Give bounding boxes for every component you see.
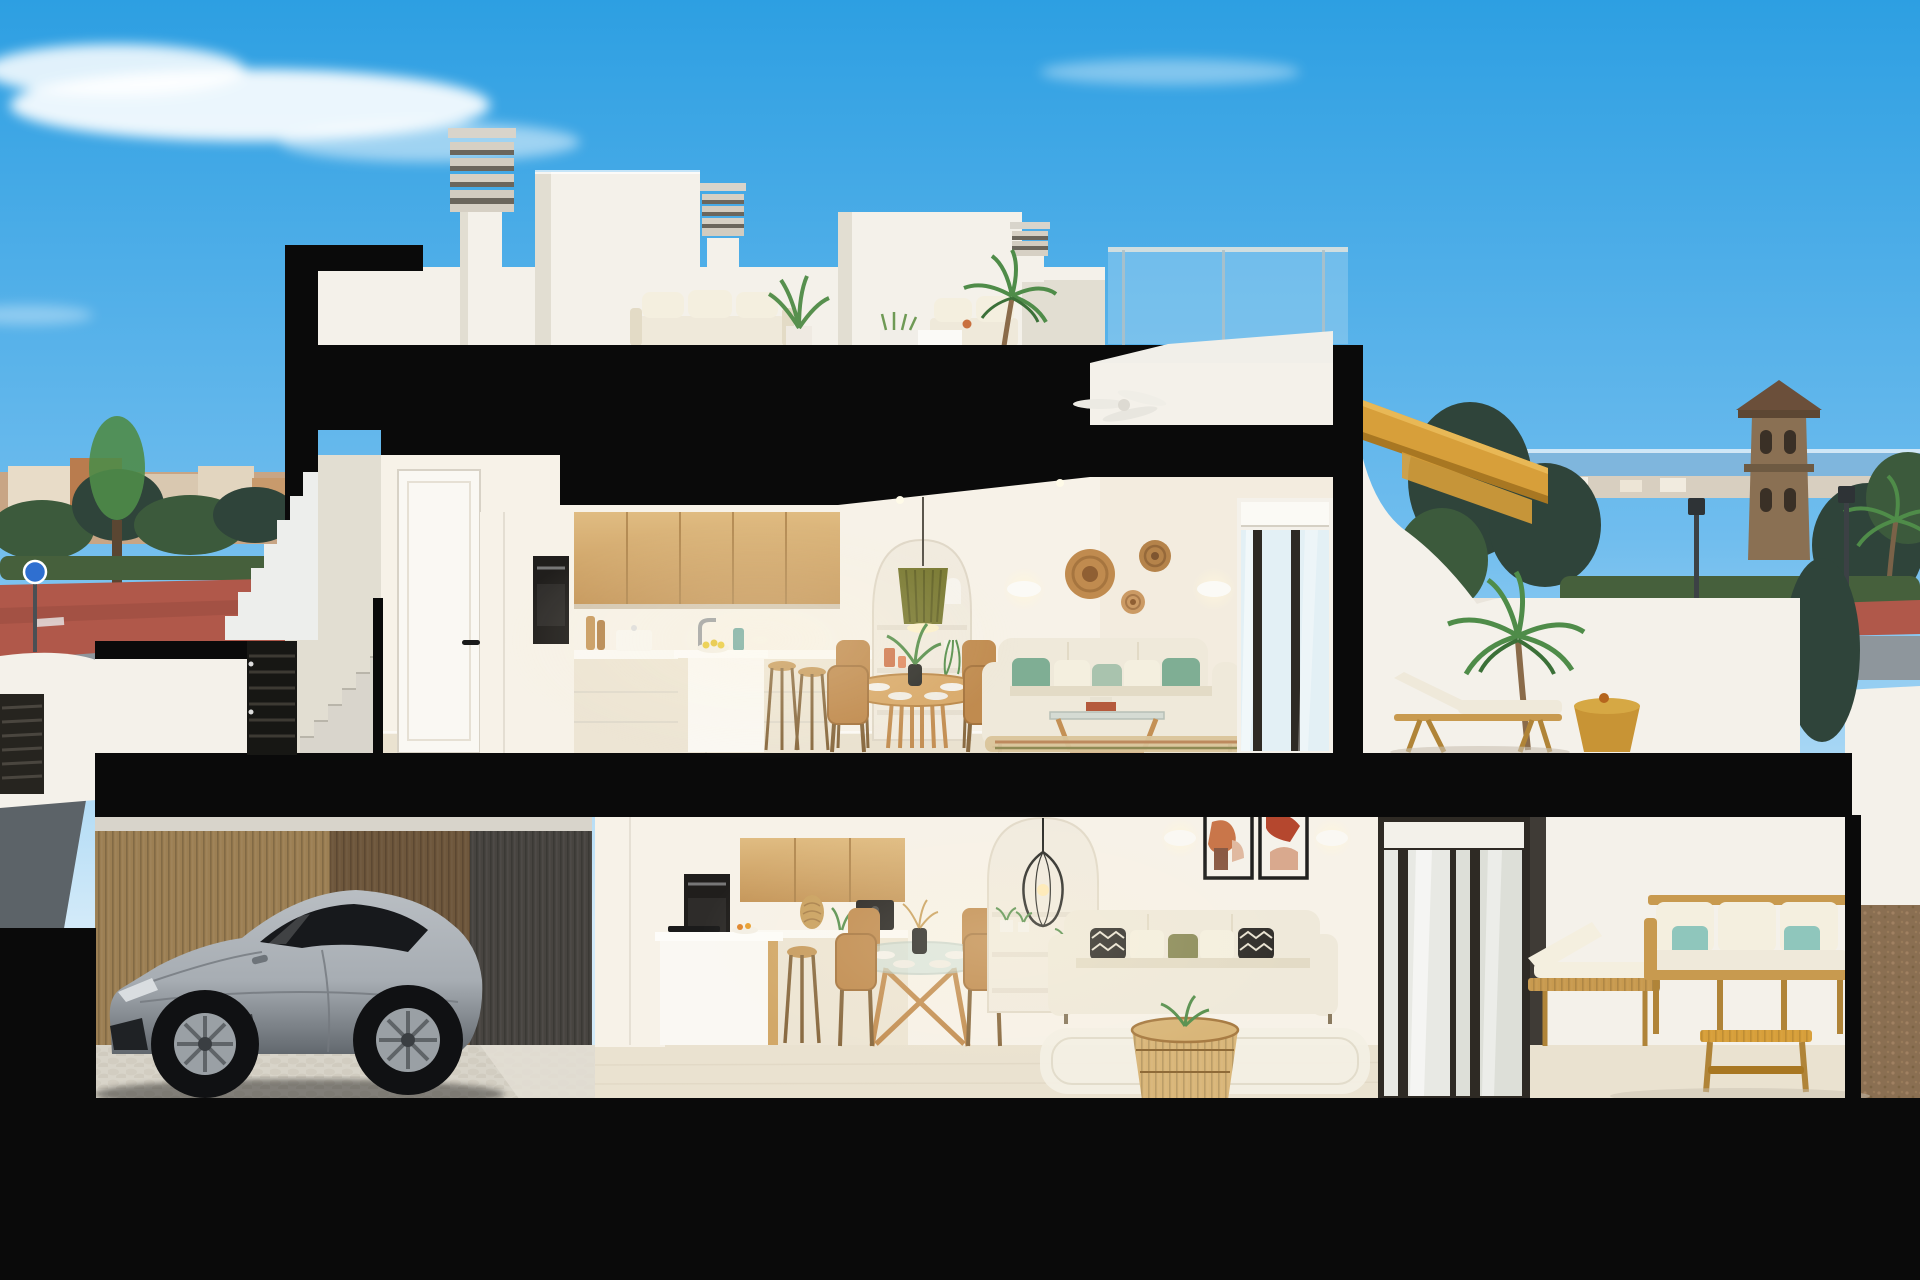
left-roof-volume	[315, 269, 420, 347]
upper-sliding-door	[1237, 498, 1333, 753]
watchtower	[1736, 380, 1822, 560]
wall-sconce-right-lower	[1312, 818, 1352, 858]
wall-sconce-left-upper	[1002, 567, 1046, 611]
cross-section-render	[0, 0, 1920, 1280]
sofa-arm-right	[1212, 662, 1240, 746]
table-cup	[1599, 693, 1609, 703]
render-stage	[0, 0, 1920, 1280]
artwork-2	[1260, 808, 1307, 878]
front-wheel	[151, 990, 259, 1098]
roof-coffee-table	[918, 330, 962, 346]
cut-stair-coping	[95, 641, 247, 659]
tower-eave	[1738, 410, 1820, 418]
cut-foundation	[0, 1098, 1920, 1280]
lower-terrace	[1528, 817, 1870, 1104]
wall-sconce-right-upper	[1192, 567, 1236, 611]
table-books	[1086, 702, 1116, 711]
fence-cap	[95, 817, 592, 831]
blind-box	[1241, 502, 1329, 526]
roof-glass-railing	[1108, 247, 1348, 345]
louvered-gate	[0, 694, 44, 794]
dark-sliding-door	[1378, 817, 1530, 1100]
interior-glow-lower	[700, 810, 1300, 1070]
roof-sofa-left	[630, 290, 794, 346]
rear-wheel	[353, 985, 463, 1095]
interior-glow-upper	[500, 520, 1020, 760]
terracotta-cup	[963, 320, 972, 329]
sofa-timber-arm	[1644, 918, 1657, 978]
cut-left-base	[0, 928, 96, 1280]
entry-parapet	[95, 659, 247, 753]
recessed-light-1	[896, 496, 904, 504]
chimney-louvers	[450, 142, 514, 212]
entry-door	[398, 470, 480, 753]
tower-cornice	[1744, 464, 1814, 472]
cut-stair-wall	[373, 598, 383, 755]
entry-gate	[247, 641, 297, 755]
recessed-light-2	[1056, 479, 1064, 487]
blind-box-lower	[1384, 822, 1524, 848]
sofa-arm-r	[1310, 934, 1338, 1016]
upper-sofa	[982, 638, 1240, 752]
mustard-side-table	[1574, 693, 1640, 752]
door-handle	[462, 640, 480, 645]
cut-right-edge	[1845, 815, 1861, 1105]
cut-right-column	[1333, 345, 1363, 765]
cut-mid-slab	[95, 753, 1852, 817]
